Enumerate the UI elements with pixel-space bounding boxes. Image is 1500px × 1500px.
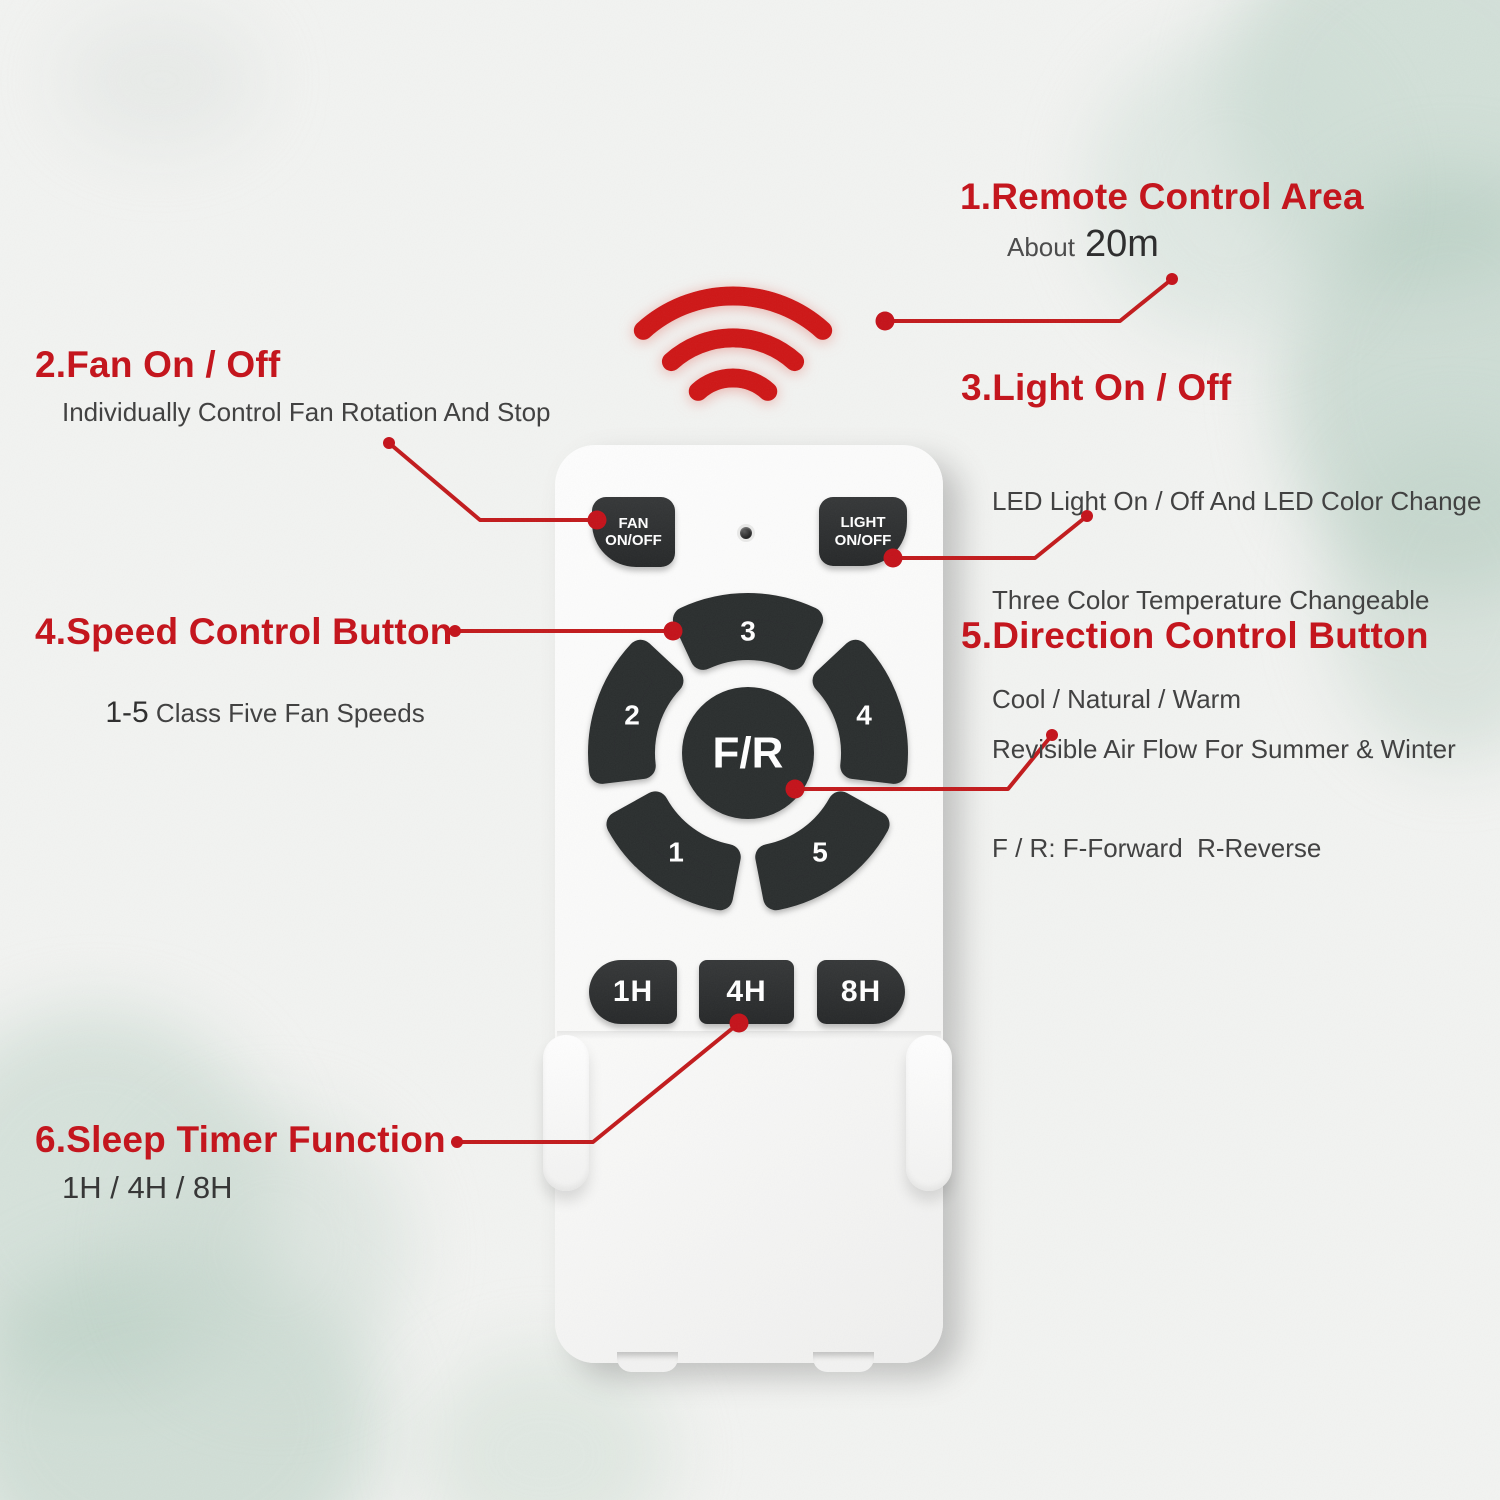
- callout-1-value: 20m: [1085, 228, 1159, 261]
- timer-4h-label: 4H: [726, 975, 766, 1009]
- callout-1: 1.Remote Control Area About 20m: [960, 176, 1364, 264]
- callout-5: 5.Direction Control Button Revisible Air…: [961, 615, 1456, 931]
- timer-8h-button[interactable]: 8H: [817, 960, 905, 1024]
- callout-4-range: 1-5: [105, 696, 148, 729]
- callout-6-title: 6.Sleep Timer Function: [35, 1119, 446, 1161]
- callout-1-anchor-dot: [876, 312, 895, 331]
- watercolor-texture: [0, 1250, 380, 1500]
- callout-2-subtext: Individually Control Fan Rotation And St…: [62, 396, 551, 429]
- callout-2: 2.Fan On / Off Individually Control Fan …: [35, 344, 551, 429]
- callout-4: 4.Speed Control Button 1-5 Class Five Fa…: [35, 611, 453, 763]
- infographic-canvas: FAN ON/OFF LIGHT ON/OFF 1H 4H 8H: [0, 0, 1500, 1500]
- callout-4-title: 4.Speed Control Button: [35, 611, 453, 653]
- fan-button-label-1: FAN: [619, 515, 649, 532]
- callout-2-text-dot: [383, 437, 395, 449]
- wifi-signal-icon: [643, 296, 822, 391]
- callout-4-rest: Class Five Fan Speeds: [149, 698, 425, 728]
- fan-on-off-button[interactable]: FAN ON/OFF: [592, 497, 675, 567]
- callout-5-line-1: Revisible Air Flow For Summer & Winter: [992, 733, 1456, 766]
- watercolor-texture: [60, 10, 260, 150]
- callout-3-line-2: Three Color Temperature Changeable: [992, 584, 1481, 617]
- timer-8h-label: 8H: [841, 975, 881, 1009]
- callout-1-text-dot: [1166, 273, 1178, 285]
- bracket-clip-left: [543, 1035, 589, 1191]
- light-button-label-2: ON/OFF: [835, 532, 892, 549]
- callout-5-line-2: F / R: F-Forward R-Reverse: [992, 832, 1456, 865]
- light-on-off-button[interactable]: LIGHT ON/OFF: [819, 497, 907, 566]
- bracket-seam: [557, 1031, 941, 1039]
- callout-1-subtext: About 20m: [1007, 228, 1364, 264]
- callout-1-line: [885, 279, 1172, 321]
- callout-1-title: 1.Remote Control Area: [960, 176, 1364, 218]
- callout-3-line-1: LED Light On / Off And LED Color Change: [992, 485, 1481, 518]
- callout-5-title: 5.Direction Control Button: [961, 615, 1456, 657]
- fan-button-label-2: ON/OFF: [605, 532, 662, 549]
- callout-5-subtext: Revisible Air Flow For Summer & Winter F…: [992, 667, 1456, 931]
- remote-body: FAN ON/OFF LIGHT ON/OFF 1H 4H 8H: [555, 445, 943, 1363]
- callout-1-prefix: About: [1007, 231, 1075, 264]
- light-button-label-1: LIGHT: [841, 514, 886, 531]
- remote-foot-right: [813, 1352, 874, 1372]
- callout-4-subtext: 1-5 Class Five Fan Speeds: [62, 663, 453, 763]
- callout-6: 6.Sleep Timer Function 1H / 4H / 8H: [35, 1119, 446, 1204]
- timer-1h-label: 1H: [613, 975, 653, 1009]
- callout-6-subtext: 1H / 4H / 8H: [62, 1171, 446, 1204]
- watercolor-texture: [420, 1350, 670, 1500]
- bracket-clip-right: [906, 1035, 952, 1191]
- callout-2-title: 2.Fan On / Off: [35, 344, 551, 386]
- callout-6-text-dot: [451, 1136, 463, 1148]
- ir-led-indicator: [740, 527, 752, 539]
- timer-1h-button[interactable]: 1H: [589, 960, 677, 1024]
- timer-4h-button[interactable]: 4H: [699, 960, 794, 1024]
- remote-foot-left: [617, 1352, 678, 1372]
- callout-3-title: 3.Light On / Off: [961, 367, 1481, 409]
